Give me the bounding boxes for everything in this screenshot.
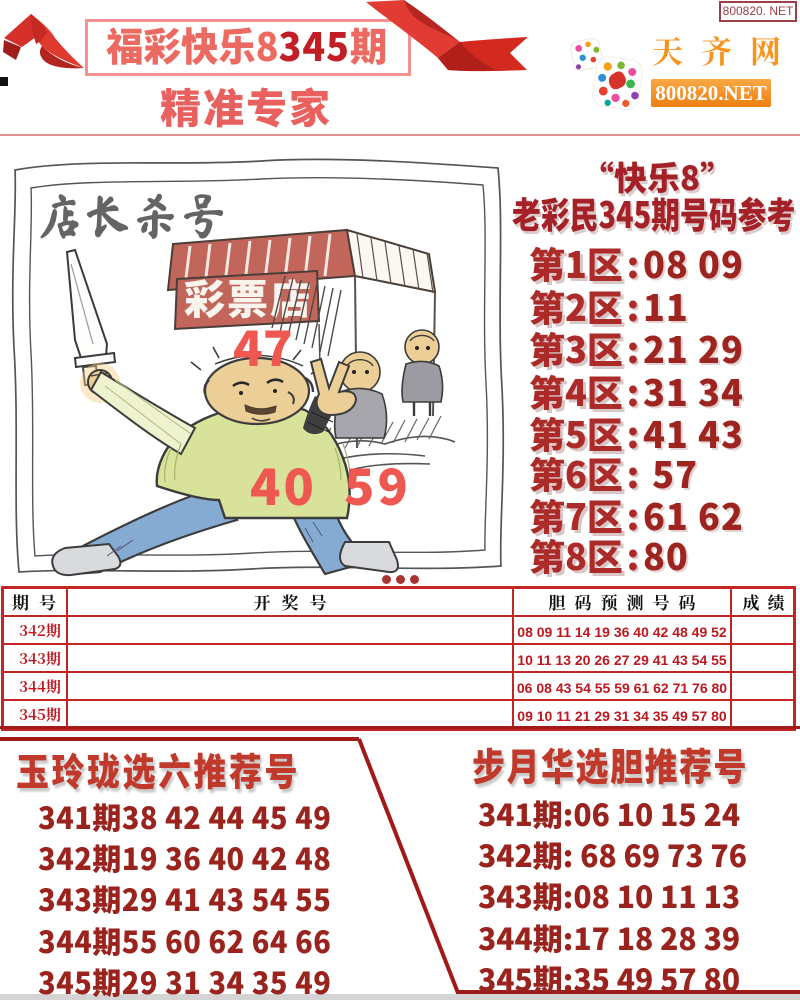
svg-text:店长杀号: 店长杀号 [36, 192, 228, 240]
svg-text:40: 40 [250, 448, 317, 520]
svg-text:59: 59 [344, 448, 411, 520]
svg-text:47: 47 [233, 310, 293, 381]
